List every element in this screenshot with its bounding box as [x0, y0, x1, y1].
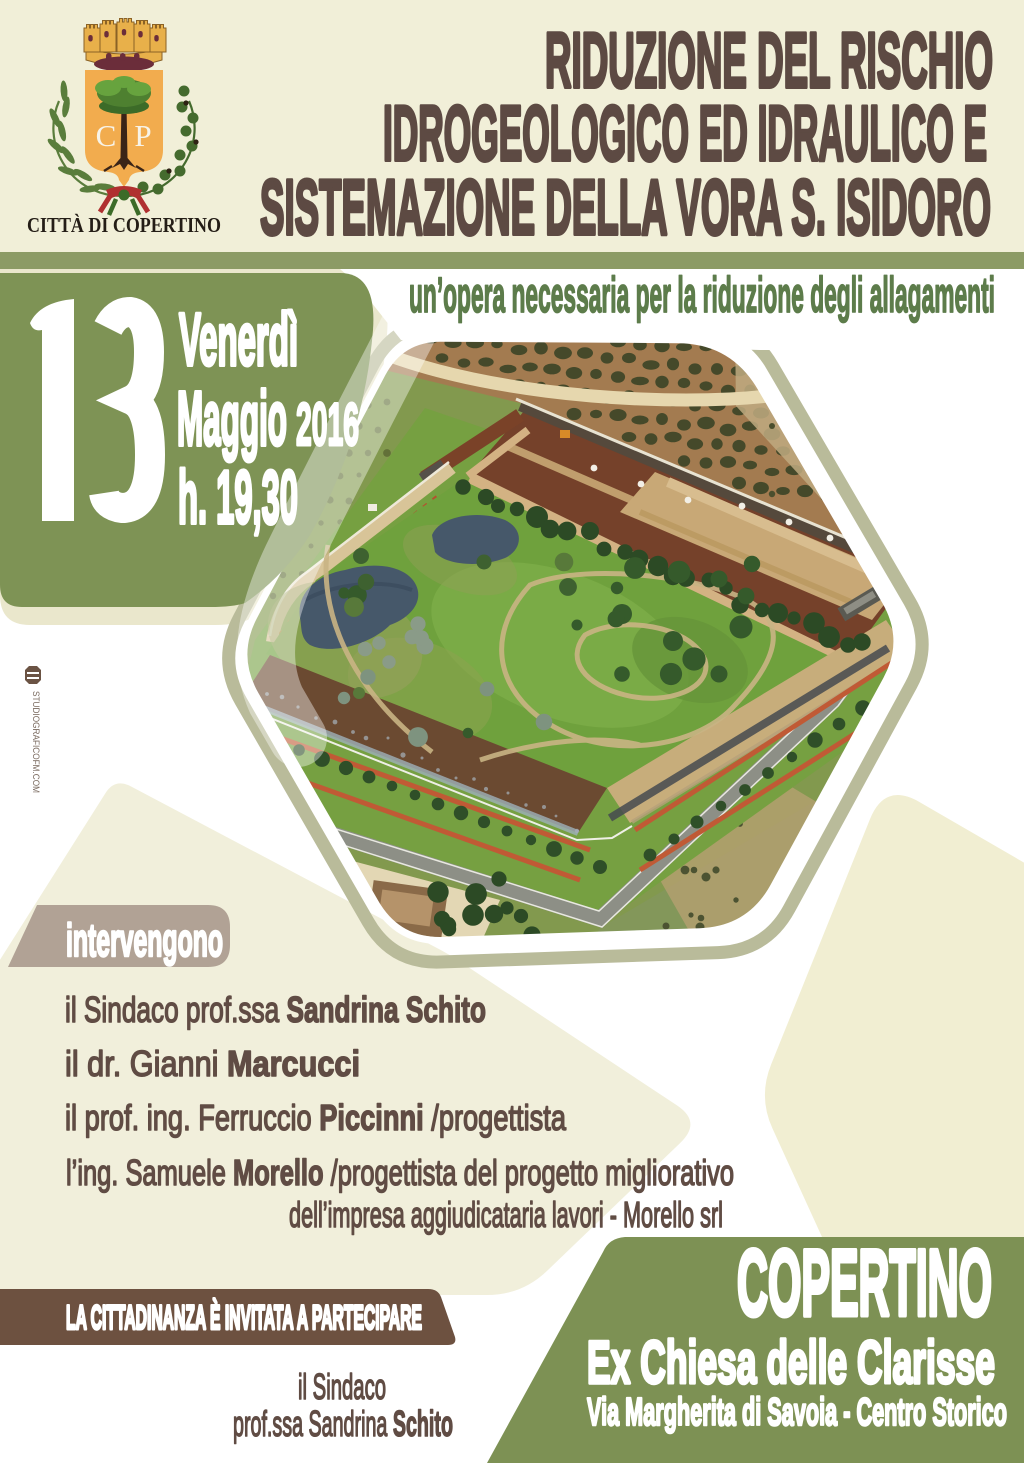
svg-text:Via Margherita di Savoia - Cen: Via Margherita di Savoia - Centro Storic…	[587, 1391, 1007, 1434]
svg-text:Maggio: Maggio	[177, 376, 287, 462]
svg-text:SISTEMAZIONE DELLA VORA S. ISI: SISTEMAZIONE DELLA VORA S. ISIDORO	[260, 163, 991, 251]
svg-text:il Sindaco: il Sindaco	[298, 1366, 386, 1407]
svg-text:un’opera necessaria per la rid: un’opera necessaria per la riduzione deg…	[409, 267, 995, 323]
svg-text:intervengono: intervengono	[66, 914, 223, 966]
svg-text:CITTÀ DI COPERTINO: CITTÀ DI COPERTINO	[27, 213, 221, 237]
svg-text:STUDIOGRAFICOFM.COM: STUDIOGRAFICOFM.COM	[31, 691, 41, 793]
svg-text:il Sindaco prof.ssa Sandrina S: il Sindaco prof.ssa Sandrina Schito	[65, 989, 486, 1030]
svg-text:l’ing. Samuele Morello /proget: l’ing. Samuele Morello /progettista del …	[66, 1152, 734, 1193]
svg-text:C: C	[96, 118, 117, 153]
svg-text:prof.ssa Sandrina Schito: prof.ssa Sandrina Schito	[233, 1403, 453, 1444]
svg-text:il dr. Gianni Marcucci: il dr. Gianni Marcucci	[65, 1043, 360, 1084]
svg-text:P: P	[134, 118, 151, 153]
svg-text:Venerdì: Venerdì	[179, 298, 298, 381]
svg-text:COPERTINO: COPERTINO	[737, 1230, 992, 1335]
svg-text:2016: 2016	[296, 391, 359, 458]
svg-text:h. 19,30: h. 19,30	[178, 455, 298, 539]
svg-text:il prof. ing. Ferruccio Piccin: il prof. ing. Ferruccio Piccinni /proget…	[65, 1097, 567, 1138]
svg-text:Ex Chiesa delle Clarisse: Ex Chiesa delle Clarisse	[587, 1329, 995, 1396]
svg-text:dell’impresa aggiudicataria la: dell’impresa aggiudicataria lavori - Mor…	[289, 1194, 723, 1235]
svg-text:LA CITTADINANZA È INVITATA A: LA CITTADINANZA È INVITATA A PARTECIPARE	[66, 1299, 422, 1337]
